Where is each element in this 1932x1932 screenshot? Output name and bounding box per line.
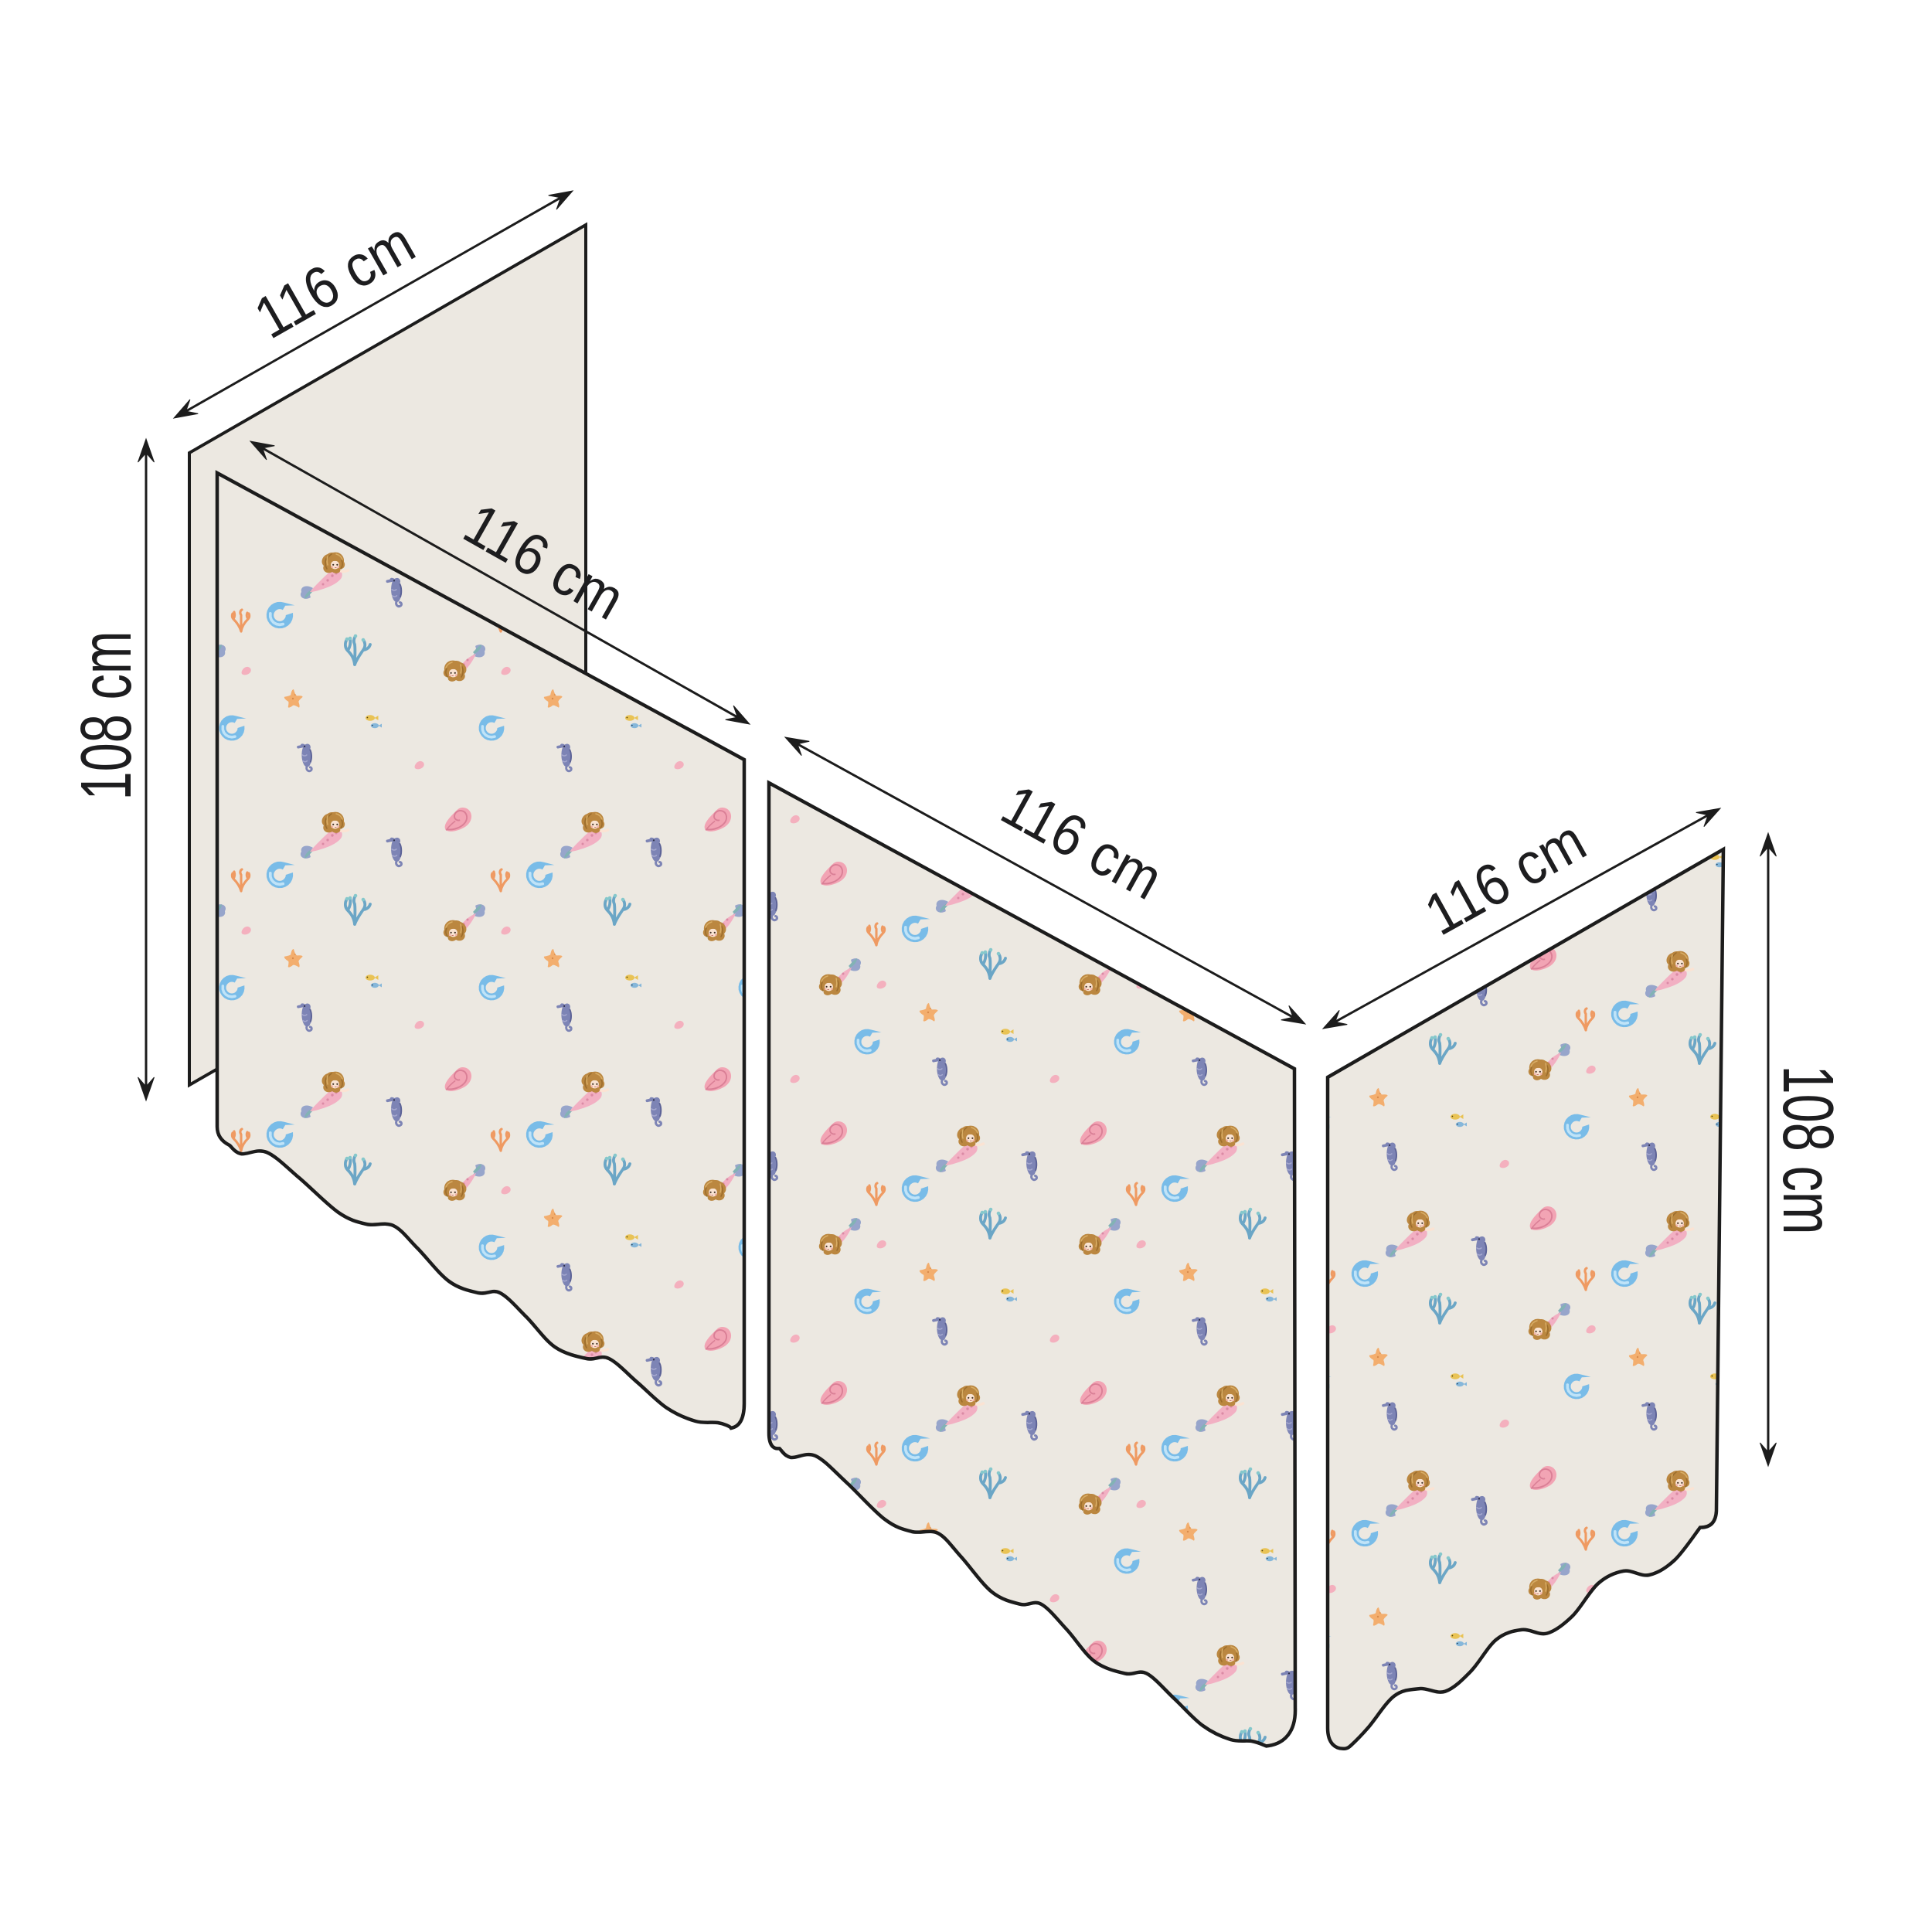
svg-text:108 cm: 108 cm: [1768, 1066, 1849, 1235]
svg-text:108 cm: 108 cm: [66, 631, 146, 801]
